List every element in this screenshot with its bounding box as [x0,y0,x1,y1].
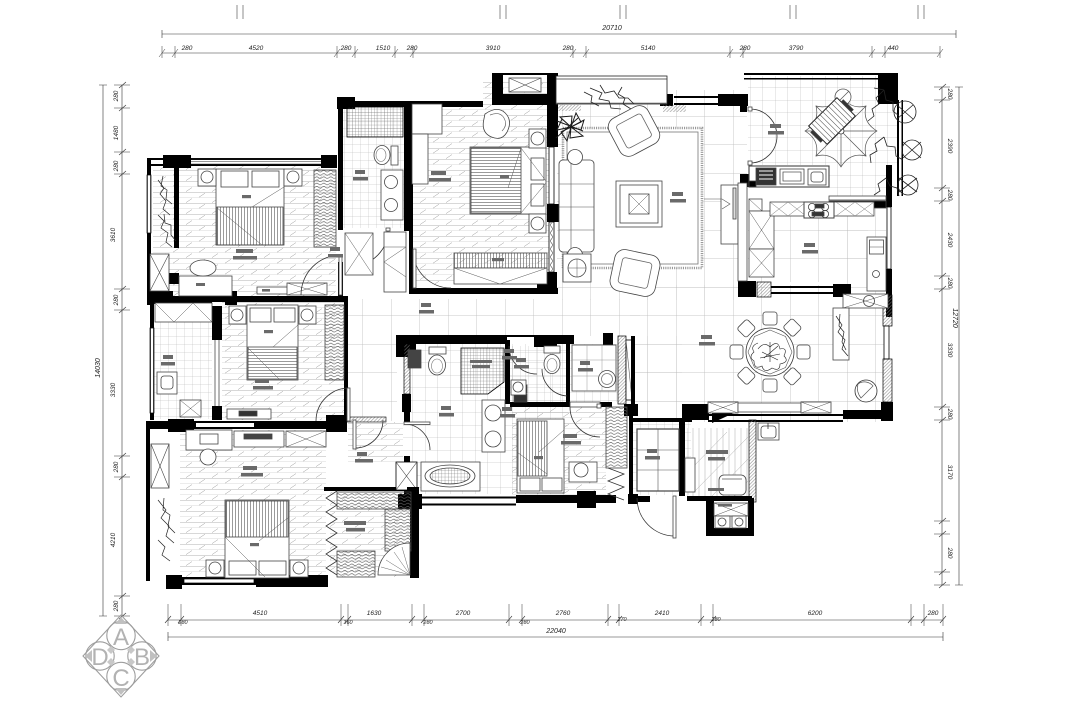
svg-text:280: 280 [340,45,352,52]
svg-text:280: 280 [113,160,120,172]
svg-text:2410: 2410 [654,610,670,617]
svg-text:440: 440 [888,45,899,52]
svg-text:280: 280 [710,617,721,623]
svg-text:14030: 14030 [95,358,102,378]
svg-text:4510: 4510 [253,610,268,617]
svg-text:A: A [113,624,129,651]
svg-text:3610: 3610 [110,227,117,242]
svg-text:6200: 6200 [808,610,823,617]
svg-text:270: 270 [616,617,627,623]
svg-text:4520: 4520 [249,45,264,52]
svg-text:1510: 1510 [376,45,391,52]
svg-text:280: 280 [946,547,953,559]
svg-text:280: 280 [946,408,953,420]
svg-text:280: 280 [519,620,530,626]
svg-text:280: 280 [946,189,953,201]
svg-text:B: B [134,644,150,671]
svg-text:280: 280 [946,88,953,100]
svg-text:C: C [112,665,129,692]
svg-text:2390: 2390 [946,138,953,154]
svg-text:280: 280 [113,90,120,102]
svg-text:3910: 3910 [486,45,501,52]
svg-text:1480: 1480 [113,125,120,140]
svg-text:3330: 3330 [946,343,953,358]
svg-text:3790: 3790 [789,45,804,52]
svg-text:280: 280 [177,620,188,626]
svg-text:280: 280 [181,45,193,52]
svg-text:280: 280 [927,610,939,617]
svg-text:D: D [91,644,108,671]
svg-text:160: 160 [343,620,353,626]
svg-text:280: 280 [113,461,120,473]
svg-text:3330: 3330 [110,382,117,397]
svg-text:12720: 12720 [951,308,958,328]
svg-text:2430: 2430 [946,232,953,248]
svg-text:280: 280 [406,45,418,52]
svg-text:1630: 1630 [367,610,382,617]
svg-text:20710: 20710 [601,25,622,32]
svg-text:2760: 2760 [555,610,571,617]
svg-text:2700: 2700 [455,610,471,617]
svg-text:280: 280 [422,620,433,626]
svg-text:280: 280 [739,45,751,52]
svg-text:3170: 3170 [946,465,953,480]
svg-text:5140: 5140 [641,45,656,52]
svg-text:280: 280 [562,45,574,52]
svg-text:4210: 4210 [110,532,117,547]
svg-text:280: 280 [113,294,120,306]
svg-text:280: 280 [113,600,120,612]
svg-text:280: 280 [946,277,953,289]
svg-text:22040: 22040 [545,628,566,635]
